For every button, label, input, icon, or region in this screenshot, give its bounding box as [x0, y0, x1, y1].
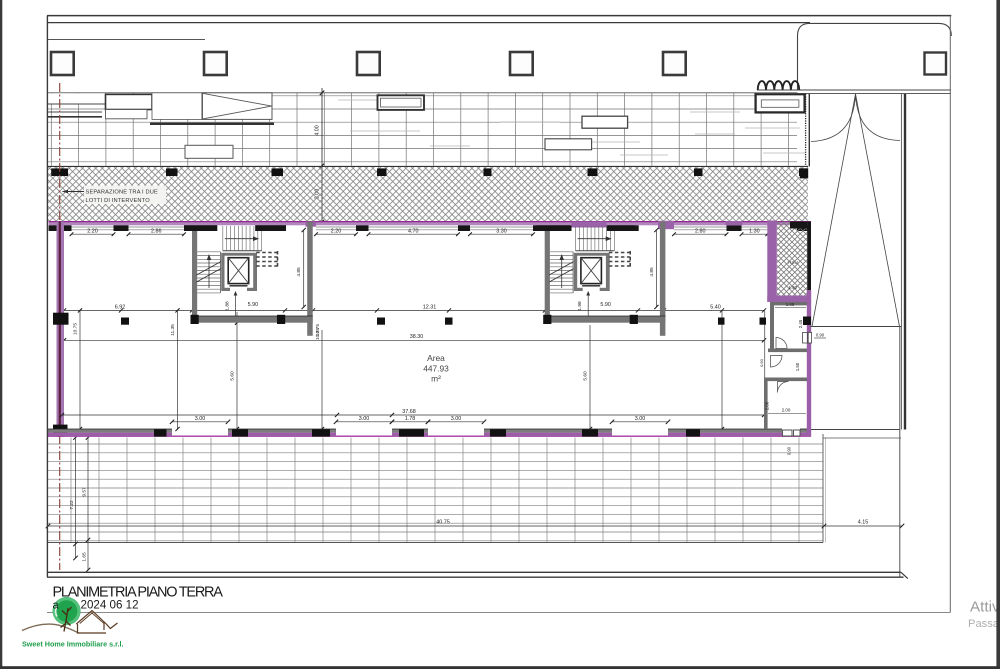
svg-text:9.57: 9.57 [82, 487, 88, 497]
svg-text:7.22: 7.22 [69, 500, 75, 510]
svg-text:12.31: 12.31 [423, 304, 437, 310]
svg-text:4.85: 4.85 [296, 267, 302, 277]
svg-text:3.30: 3.30 [496, 229, 507, 235]
svg-text:3.00: 3.00 [195, 416, 206, 422]
svg-text:4.85: 4.85 [649, 267, 655, 277]
svg-text:4.00: 4.00 [315, 125, 321, 136]
svg-text:Passaggi: Passaggi [968, 618, 1000, 630]
svg-text:4.70: 4.70 [408, 229, 419, 235]
svg-text:5.90: 5.90 [600, 302, 611, 308]
svg-text:3.00: 3.00 [635, 416, 646, 422]
svg-text:1.98: 1.98 [577, 301, 583, 311]
svg-text:a: a [53, 600, 60, 612]
svg-text:5.60: 5.60 [230, 371, 236, 381]
svg-text:1.88: 1.88 [224, 301, 230, 311]
svg-text:Area: Area [427, 353, 445, 363]
svg-text:1.68: 1.68 [786, 302, 795, 307]
svg-text:2.45: 2.45 [798, 319, 803, 328]
svg-text:0.90: 0.90 [816, 333, 825, 338]
svg-text:2.00: 2.00 [765, 401, 770, 410]
svg-text:10.75: 10.75 [315, 328, 321, 340]
svg-text:2.20: 2.20 [87, 229, 98, 235]
svg-text:RSU: RSU [788, 260, 798, 265]
svg-text:Sweet Home Immobiliare s.r.l.: Sweet Home Immobiliare s.r.l. [22, 640, 123, 649]
svg-text:LOTTI DI INTERVENTO: LOTTI DI INTERVENTO [86, 198, 151, 204]
svg-text:4.15: 4.15 [858, 520, 869, 526]
svg-text:5.40: 5.40 [710, 304, 721, 310]
svg-text:447.93: 447.93 [423, 364, 449, 374]
svg-text:11.35: 11.35 [170, 324, 176, 336]
svg-text:5.90: 5.90 [248, 302, 259, 308]
svg-text:3.00: 3.00 [451, 416, 462, 422]
svg-text:2024 06 12: 2024 06 12 [81, 599, 139, 612]
svg-text:1.65: 1.65 [82, 552, 88, 562]
svg-text:37.68: 37.68 [402, 409, 416, 415]
svg-text:2.86: 2.86 [151, 229, 162, 235]
svg-text:2.80: 2.80 [695, 229, 706, 235]
svg-text:m²: m² [431, 374, 441, 384]
svg-text:SEPARAZIONE TRA I DUE: SEPARAZIONE TRA I DUE [86, 190, 159, 196]
svg-text:1.50: 1.50 [795, 362, 800, 371]
svg-text:Attività: Attività [970, 599, 1000, 616]
svg-text:5.60: 5.60 [583, 371, 589, 381]
svg-text:0.90: 0.90 [759, 358, 764, 367]
svg-text:10.75: 10.75 [73, 323, 79, 335]
svg-text:0.90: 0.90 [787, 446, 792, 455]
svg-text:3.00: 3.00 [359, 416, 370, 422]
svg-text:2.20: 2.20 [331, 229, 342, 235]
svg-text:2.00: 2.00 [782, 408, 791, 413]
svg-text:38.30: 38.30 [410, 334, 424, 340]
svg-text:1.40: 1.40 [788, 285, 797, 290]
svg-text:1.78: 1.78 [405, 416, 416, 422]
svg-text:6.92: 6.92 [115, 304, 126, 310]
svg-text:40.75: 40.75 [436, 520, 450, 526]
svg-text:1.30: 1.30 [749, 229, 760, 235]
